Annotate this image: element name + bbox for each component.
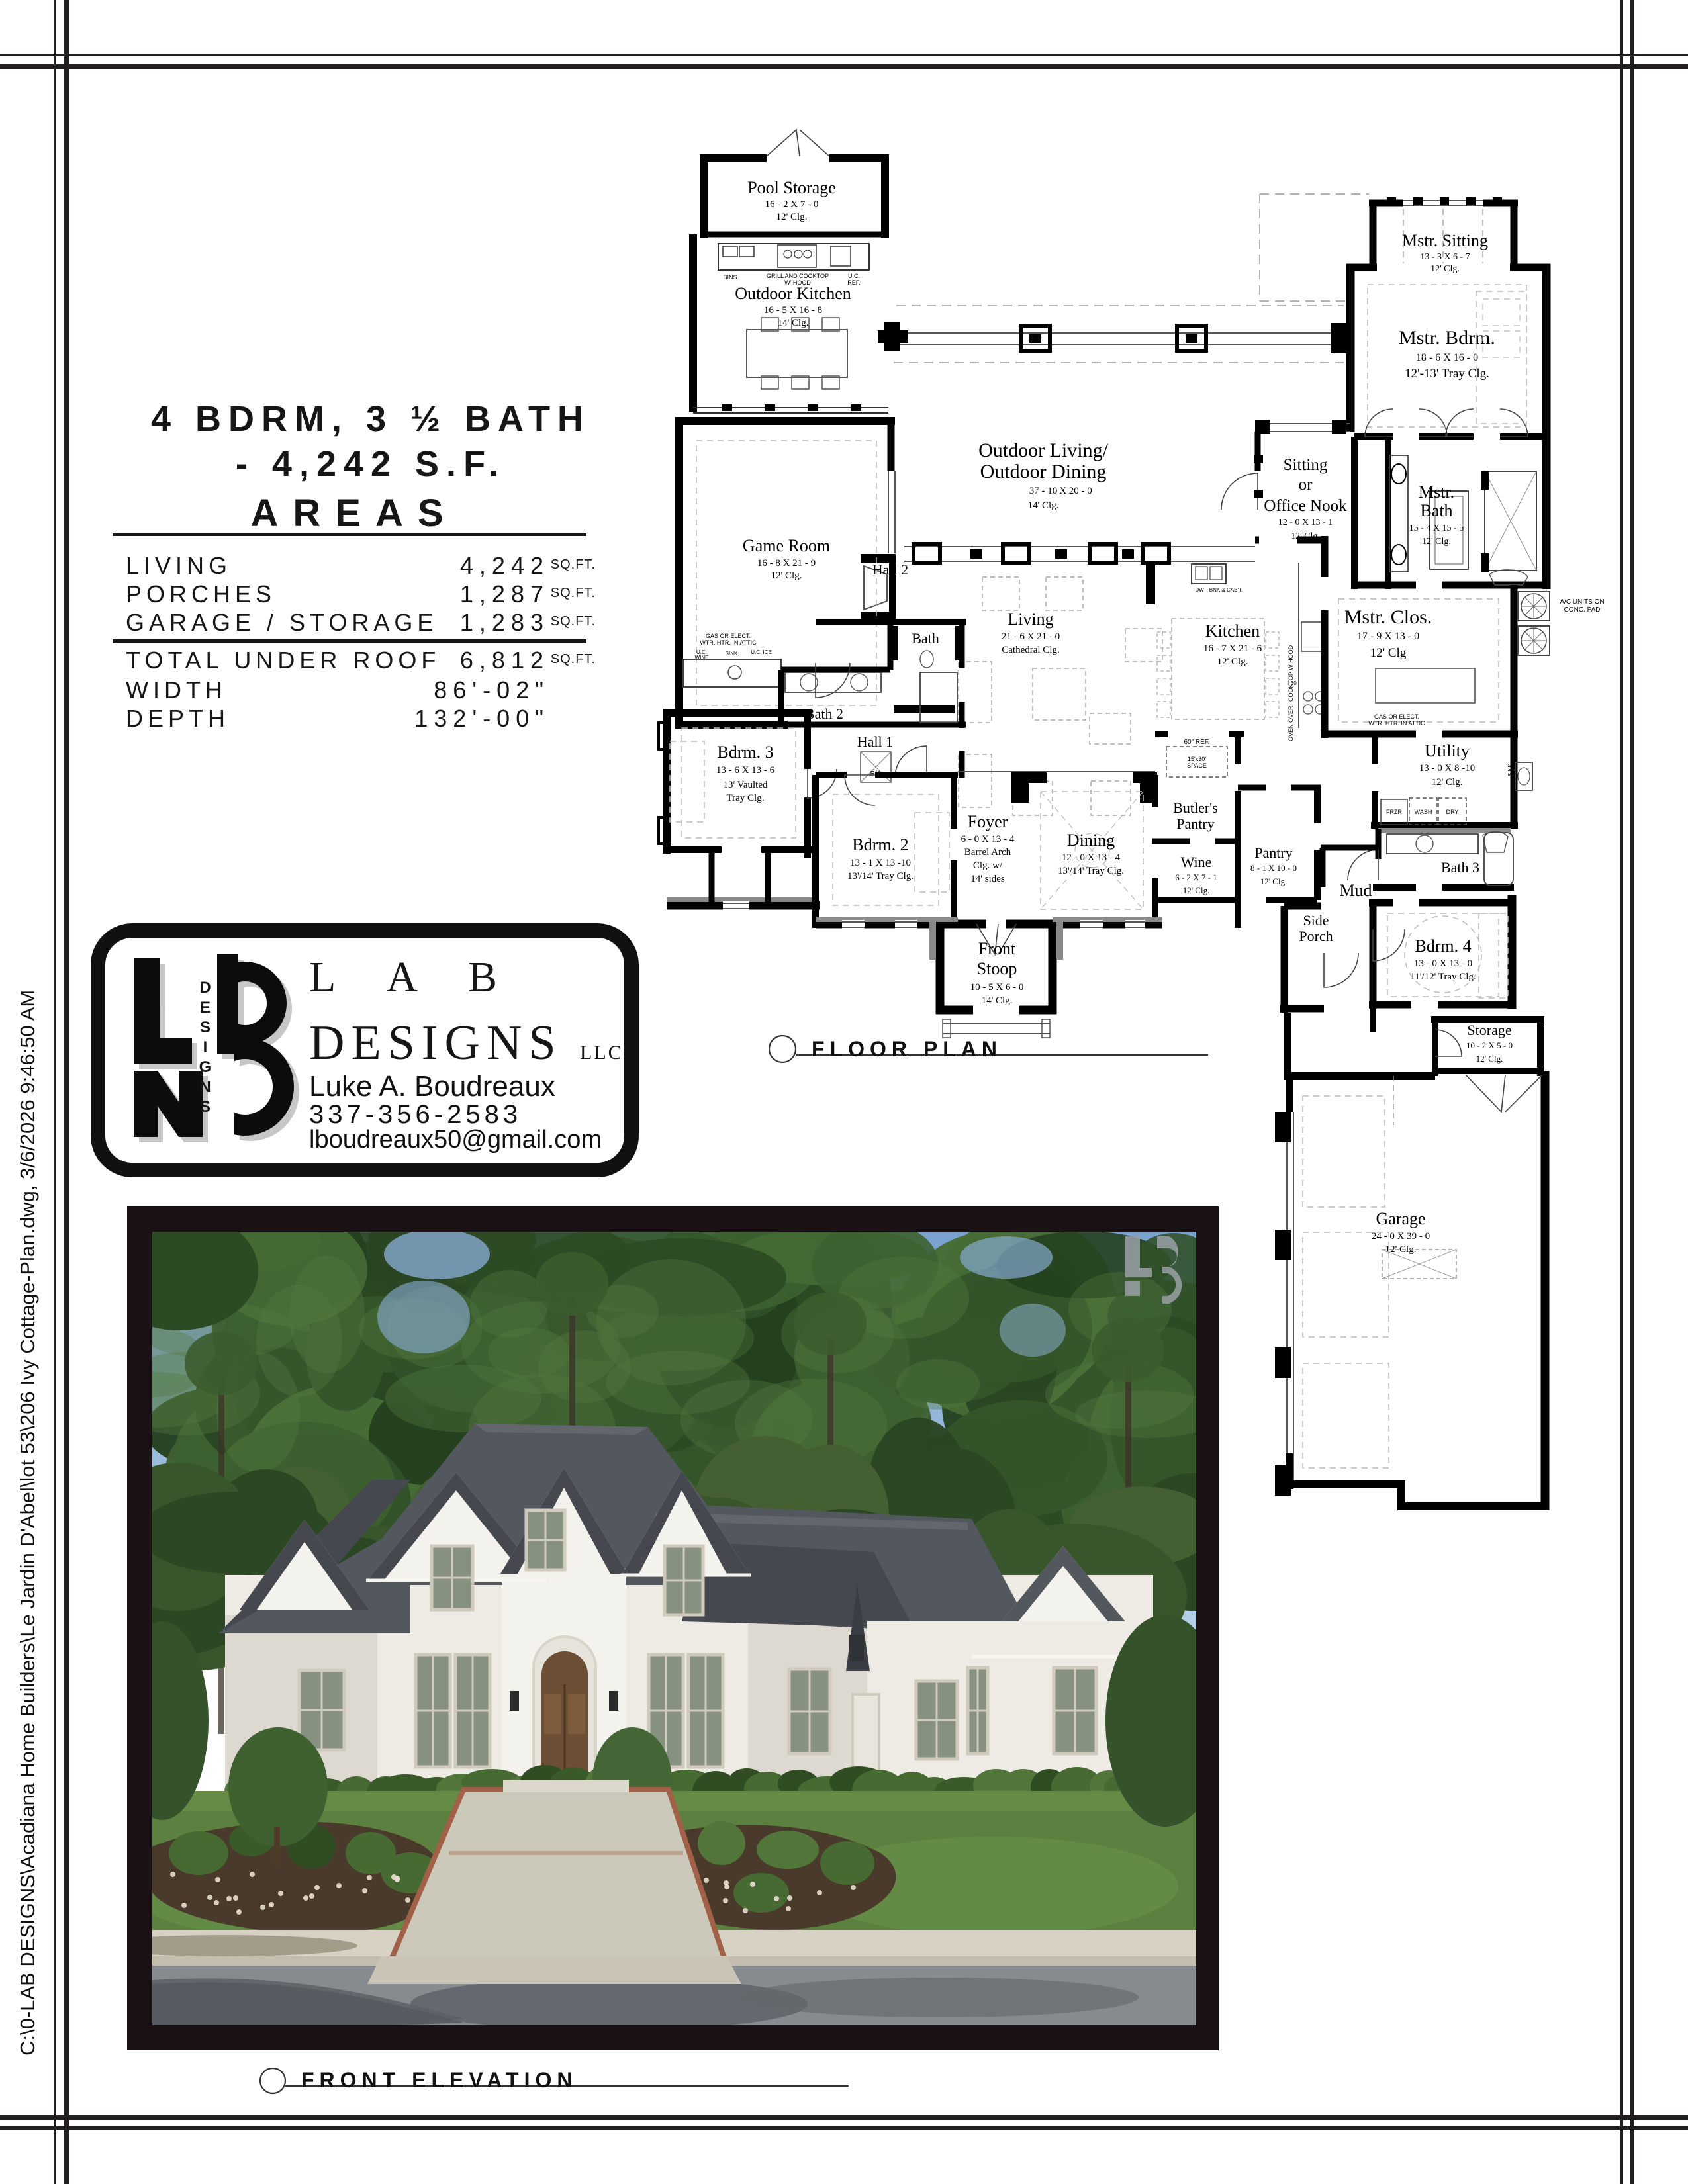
svg-text:WINE: WINE (695, 655, 709, 660)
svg-text:Game Room: Game Room (743, 536, 830, 555)
svg-text:Bath: Bath (1420, 501, 1452, 520)
svg-text:16 - 8 X 21 - 9: 16 - 8 X 21 - 9 (757, 558, 816, 569)
svg-text:BINS: BINS (723, 274, 737, 281)
svg-text:Storage: Storage (1467, 1022, 1511, 1038)
svg-text:6 - 0 X 13 - 4: 6 - 0 X 13 - 4 (961, 834, 1015, 844)
svg-text:12' Clg.: 12' Clg. (1217, 657, 1248, 667)
svg-text:13 - 3 X 6 - 7: 13 - 3 X 6 - 7 (1420, 252, 1470, 262)
svg-text:LAB: LAB (309, 953, 547, 1001)
svg-text:A/C UNITS ON: A/C UNITS ON (1560, 598, 1604, 606)
svg-text:Bdrm. 3: Bdrm. 3 (717, 743, 773, 762)
svg-text:DESIGNS: DESIGNS (309, 1016, 562, 1070)
svg-text:U.C.: U.C. (848, 273, 860, 279)
svg-text:E: E (200, 999, 211, 1017)
svg-text:11'/12' Tray Clg.: 11'/12' Tray Clg. (1410, 972, 1476, 982)
svg-text:Pool Storage: Pool Storage (747, 178, 836, 197)
svg-text:Bath 3: Bath 3 (1441, 859, 1479, 876)
svg-text:Office Nook: Office Nook (1264, 497, 1347, 515)
svg-text:12' Clg.: 12' Clg. (1430, 264, 1460, 274)
svg-text:CONC. PAD: CONC. PAD (1564, 606, 1601, 614)
svg-text:GAS OR ELECT.: GAS OR ELECT. (1374, 713, 1419, 720)
svg-text:13' Vaulted: 13' Vaulted (723, 780, 768, 790)
svg-text:Outdoor Living/: Outdoor Living/ (978, 439, 1108, 461)
svg-text:17 - 9 X 13 - 0: 17 - 9 X 13 - 0 (1357, 631, 1419, 642)
svg-text:12' Clg.: 12' Clg. (1422, 537, 1451, 547)
svg-text:Mstr.: Mstr. (1419, 482, 1454, 502)
svg-text:Mstr. Clos.: Mstr. Clos. (1344, 606, 1432, 628)
svg-text:or: or (1299, 476, 1313, 494)
svg-text:12 - 0 X 13 - 1: 12 - 0 X 13 - 1 (1278, 518, 1333, 527)
svg-text:15'x30': 15'x30' (1188, 756, 1206, 762)
svg-text:12' Clg.: 12' Clg. (776, 212, 808, 222)
svg-text:SINK: SINK (1507, 764, 1513, 776)
svg-text:Mud: Mud (1339, 881, 1372, 900)
svg-text:12' Clg.: 12' Clg. (771, 570, 802, 581)
svg-text:8 - 1 X 10 - 0: 8 - 1 X 10 - 0 (1250, 863, 1297, 873)
svg-text:Porch: Porch (1299, 928, 1333, 944)
svg-text:14' Clg.: 14' Clg. (982, 995, 1013, 1006)
svg-text:Outdoor Kitchen: Outdoor Kitchen (735, 284, 851, 303)
svg-text:Stoop: Stoop (977, 959, 1017, 978)
svg-text:X 20 - 0: X 20 - 0 (1059, 486, 1092, 496)
svg-text:Tray Clg.: Tray Clg. (727, 793, 765, 803)
svg-text:LLC: LLC (580, 1042, 624, 1064)
svg-text:13'/14' Tray Clg.: 13'/14' Tray Clg. (847, 871, 914, 882)
svg-text:14' sides: 14' sides (970, 874, 1005, 884)
svg-text:14' Clg.: 14' Clg. (1028, 500, 1059, 511)
svg-text:13 - 1 X 13 -10: 13 - 1 X 13 -10 (850, 858, 911, 868)
svg-text:60" REF.: 60" REF. (1184, 739, 1209, 746)
svg-text:BNK & CAB'T.: BNK & CAB'T. (1209, 587, 1243, 593)
svg-text:Kitchen: Kitchen (1205, 621, 1260, 641)
svg-text:13 - 0 X 8 -10: 13 - 0 X 8 -10 (1419, 763, 1476, 774)
svg-text:12 - 0 X 13 - 4: 12 - 0 X 13 - 4 (1062, 852, 1121, 863)
svg-text:S: S (200, 1098, 211, 1116)
svg-text:Mstr. Sitting: Mstr. Sitting (1402, 231, 1488, 250)
svg-text:Barrel Arch: Barrel Arch (964, 847, 1011, 858)
svg-text:18 - 6 X 16 - 0: 18 - 6 X 16 - 0 (1416, 352, 1478, 363)
svg-text:21 - 6 X 21 - 0: 21 - 6 X 21 - 0 (1002, 631, 1060, 642)
svg-text:10 - 5 X 6 - 0: 10 - 5 X 6 - 0 (970, 982, 1024, 993)
svg-text:15 - 4 X 15 - 5: 15 - 4 X 15 - 5 (1409, 523, 1464, 533)
svg-text:SPACE: SPACE (1187, 762, 1207, 769)
svg-text:WTR. HTR. IN ATTIC: WTR. HTR. IN ATTIC (1368, 720, 1425, 727)
svg-text:WASH: WASH (1415, 809, 1432, 815)
svg-text:Front: Front (978, 939, 1016, 958)
svg-text:D: D (199, 979, 211, 997)
svg-text:I: I (203, 1038, 208, 1056)
svg-text:OVEN OVER: OVEN OVER (1288, 705, 1294, 741)
svg-text:Outdoor Dining: Outdoor Dining (980, 461, 1107, 482)
svg-text:12' Clg.: 12' Clg. (1260, 876, 1288, 886)
svg-text:16 - 5 X 16 - 8: 16 - 5 X 16 - 8 (764, 305, 822, 316)
svg-text:10 - 2 X 5 - 0: 10 - 2 X 5 - 0 (1466, 1040, 1513, 1050)
svg-text:14' Clg.: 14' Clg. (778, 318, 809, 328)
svg-text:WTR. HTR. IN ATTIC: WTR. HTR. IN ATTIC (700, 639, 757, 646)
svg-text:COOKTOP W HOOD: COOKTOP W HOOD (1288, 645, 1294, 702)
svg-text:GAS OR ELECT.: GAS OR ELECT. (706, 633, 751, 639)
svg-text:SINK: SINK (726, 651, 738, 657)
svg-text:12' Clg.: 12' Clg. (1432, 777, 1463, 788)
svg-text:DW: DW (1195, 587, 1204, 593)
svg-text:16 - 7 X 21 - 6: 16 - 7 X 21 - 6 (1203, 643, 1262, 654)
svg-text:N: N (199, 1078, 211, 1096)
svg-text:Pantry: Pantry (1254, 844, 1292, 861)
svg-text:337-356-2583: 337-356-2583 (309, 1100, 522, 1129)
svg-text:12' Clg.: 12' Clg. (1476, 1054, 1503, 1064)
svg-text:6 - 2 X 7 - 1: 6 - 2 X 7 - 1 (1175, 872, 1217, 882)
svg-text:FRZR: FRZR (1386, 809, 1402, 815)
svg-text:Mstr. Bdrm.: Mstr. Bdrm. (1399, 327, 1495, 349)
svg-text:S: S (200, 1019, 211, 1036)
svg-text:Utility: Utility (1425, 741, 1470, 760)
svg-text:13 - 6 X 13 - 6: 13 - 6 X 13 - 6 (716, 765, 775, 776)
svg-text:Living: Living (1008, 610, 1053, 629)
svg-text:Side: Side (1303, 912, 1329, 929)
svg-text:G: G (199, 1058, 212, 1076)
svg-text:DRY: DRY (1446, 809, 1459, 815)
svg-text:Hall 2: Hall 2 (872, 561, 908, 578)
svg-text:GRILL AND COOKTOP: GRILL AND COOKTOP (767, 273, 829, 279)
svg-text:Luke A. Boudreaux: Luke A. Boudreaux (309, 1070, 555, 1103)
svg-text:12' Clg.: 12' Clg. (1183, 886, 1210, 895)
svg-text:Cathedral Clg.: Cathedral Clg. (1002, 645, 1059, 655)
svg-text:FRONT ELEVATION: FRONT ELEVATION (301, 2068, 577, 2092)
svg-text:37 - 10: 37 - 10 (1029, 486, 1058, 496)
svg-text:Garage: Garage (1376, 1209, 1425, 1228)
svg-text:12' Clg: 12' Clg (1370, 646, 1407, 660)
svg-text:Butler's: Butler's (1173, 799, 1218, 816)
svg-text:Bath: Bath (912, 630, 939, 647)
svg-text:Bdrm. 2: Bdrm. 2 (852, 835, 908, 854)
svg-text:Clg. w/: Clg. w/ (973, 860, 1003, 871)
svg-text:13'/14' Tray Clg.: 13'/14' Tray Clg. (1058, 866, 1124, 876)
svg-text:Pantry: Pantry (1176, 815, 1214, 832)
svg-text:Sitting: Sitting (1284, 456, 1328, 474)
svg-text:Foyer: Foyer (968, 812, 1008, 831)
svg-text:lboudreaux50@gmail.com: lboudreaux50@gmail.com (309, 1126, 602, 1154)
svg-text:Hall 1: Hall 1 (857, 733, 893, 750)
svg-text:FLOOR PLAN: FLOOR PLAN (812, 1037, 1002, 1061)
svg-text:Wine: Wine (1181, 854, 1212, 870)
svg-text:U.C. ICE: U.C. ICE (751, 649, 772, 655)
svg-text:Bdrm. 4: Bdrm. 4 (1415, 936, 1471, 956)
svg-text:13 - 0 X 13 - 0: 13 - 0 X 13 - 0 (1414, 958, 1472, 969)
svg-text:16 - 2 X 7 - 0: 16 - 2 X 7 - 0 (765, 199, 819, 210)
